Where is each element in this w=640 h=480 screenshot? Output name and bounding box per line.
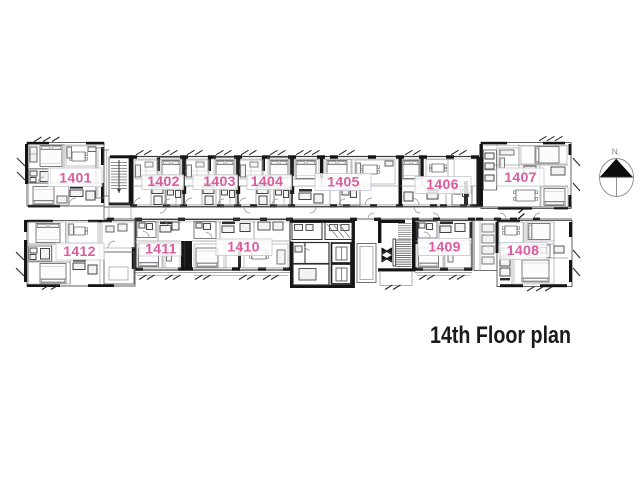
svg-text:1402: 1402 (147, 173, 180, 189)
svg-text:1401: 1401 (59, 169, 92, 185)
svg-text:1411: 1411 (145, 240, 177, 256)
svg-text:1404: 1404 (251, 173, 284, 189)
svg-text:1407: 1407 (504, 169, 537, 185)
svg-text:1412: 1412 (63, 243, 96, 259)
svg-text:1403: 1403 (203, 173, 236, 189)
svg-text:14th Floor plan: 14th Floor plan (430, 322, 571, 349)
svg-text:N.: N. (612, 147, 621, 157)
svg-text:1410: 1410 (227, 238, 260, 254)
svg-text:1408: 1408 (507, 242, 540, 258)
svg-text:1406: 1406 (426, 176, 459, 192)
svg-text:1409: 1409 (428, 238, 461, 254)
svg-text:1405: 1405 (327, 173, 360, 189)
